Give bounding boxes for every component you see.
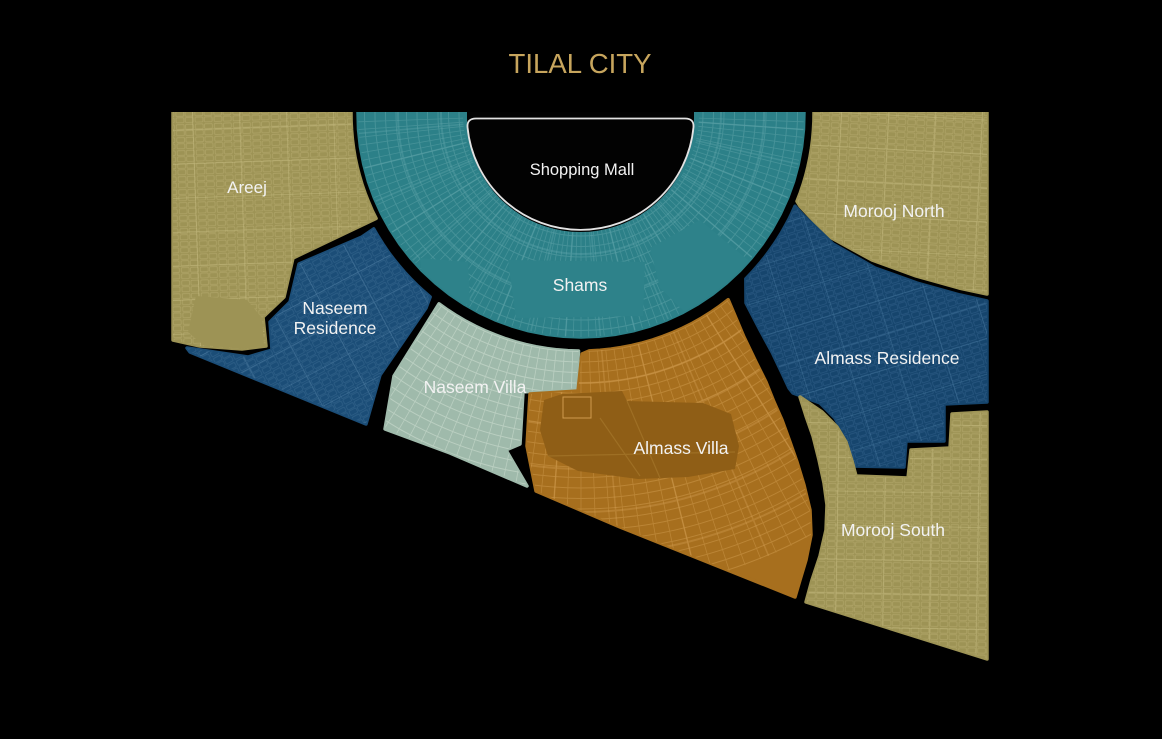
svg-text:Residence: Residence: [294, 318, 377, 338]
svg-text:Morooj South: Morooj South: [841, 520, 945, 540]
svg-text:Shopping Mall: Shopping Mall: [530, 161, 635, 179]
svg-text:Naseem Villa: Naseem Villa: [424, 377, 527, 397]
svg-text:Shams: Shams: [553, 275, 608, 295]
svg-text:Morooj North: Morooj North: [843, 201, 944, 221]
svg-text:Areej: Areej: [227, 178, 267, 197]
svg-text:Almass Residence: Almass Residence: [815, 348, 960, 368]
svg-text:Naseem: Naseem: [302, 298, 367, 318]
svg-text:TILAL CITY: TILAL CITY: [509, 48, 652, 79]
svg-text:Almass Villa: Almass Villa: [634, 438, 729, 458]
